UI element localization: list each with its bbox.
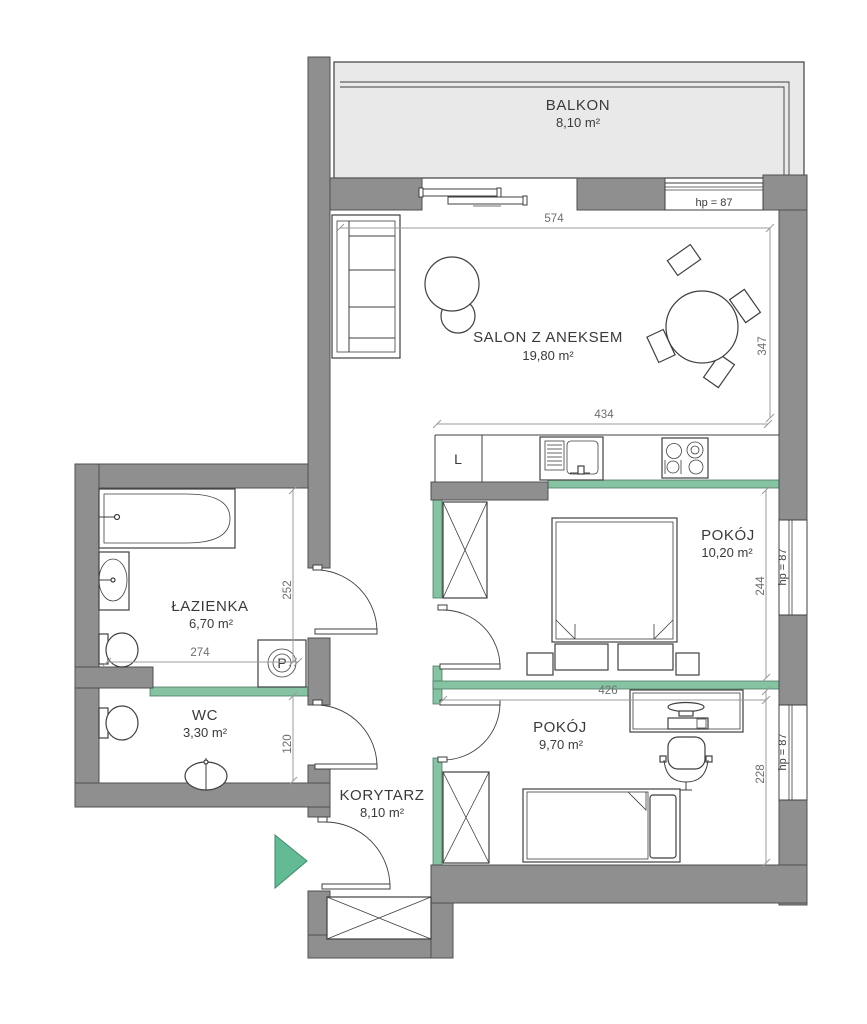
- faucet: [111, 578, 115, 582]
- bathtub: [99, 489, 235, 548]
- armchair: [425, 257, 479, 333]
- kitchen-sink: [540, 437, 603, 480]
- accent-wall-segment: [548, 480, 779, 488]
- wardrobe: [443, 502, 487, 598]
- room-area-korytarz: 8,10 m²: [360, 805, 405, 820]
- dim-label-kitchen-width: 434: [594, 409, 614, 421]
- accent-wall-segment: [433, 487, 442, 598]
- desk-chair: [660, 737, 712, 790]
- window-right-2: hp = 87: [777, 705, 807, 800]
- wall-segment: [308, 638, 330, 705]
- washbasin: [99, 552, 129, 610]
- dim-label-bedroom2-depth: 228: [755, 764, 767, 783]
- window-sill-label: hp = 87: [777, 733, 789, 770]
- pillow: [650, 795, 676, 858]
- room-label-salon: SALON Z ANEKSEM: [473, 329, 623, 346]
- balcony-sliding-door: [419, 188, 527, 206]
- wall-segment: [75, 667, 153, 688]
- dim-label-salon-depth: 347: [757, 336, 769, 355]
- window-sill-label: hp = 87: [695, 197, 732, 209]
- room-area-salon: 19,80 m²: [522, 348, 574, 363]
- wardrobe: [443, 772, 489, 863]
- dim-label-bathroom-depth: 252: [282, 580, 294, 599]
- faucet: [115, 515, 120, 520]
- wc-door: [313, 700, 377, 769]
- bedroom1-furniture: [443, 502, 699, 675]
- faucet: [578, 466, 584, 474]
- room-area-pokoj2: 9,70 m²: [539, 737, 584, 752]
- wall-segment: [308, 57, 330, 568]
- dining-table: [666, 291, 738, 363]
- entry-door: [318, 817, 390, 889]
- pillow: [618, 644, 673, 670]
- wall-segment: [577, 178, 665, 210]
- laptop: [668, 718, 708, 729]
- room-label-lazienka: ŁAZIENKA: [171, 598, 248, 615]
- room-label-wc: WC: [192, 707, 218, 724]
- toilet-bowl: [106, 706, 138, 740]
- floor-plan-page: hp = 87 hp = 87 hp = 87: [0, 0, 867, 1024]
- window-right-1: hp = 87: [777, 520, 807, 615]
- wall-segment: [431, 865, 807, 903]
- wall-segment: [779, 210, 807, 520]
- sofa: [332, 215, 400, 358]
- floor-plan-drawing: hp = 87 hp = 87 hp = 87: [0, 0, 867, 1024]
- toilet-wc: [99, 706, 138, 740]
- wall-segment: [75, 464, 99, 807]
- room-area-wc: 3,30 m²: [183, 725, 228, 740]
- wall-segment: [779, 615, 807, 705]
- dining-set: [647, 245, 760, 388]
- dim-label-bedroom2-width: 426: [598, 685, 617, 697]
- accent-wall-segment: [433, 758, 442, 867]
- bedroom2-furniture: [443, 690, 743, 863]
- double-bed: [527, 518, 699, 675]
- bathroom-door: [313, 565, 377, 634]
- dim-label-wc-depth: 120: [282, 734, 294, 753]
- washing-machine-label: P: [277, 655, 286, 671]
- room-label-korytarz: KORYTARZ: [339, 787, 424, 804]
- room-label-pokoj2: POKÓJ: [533, 719, 587, 736]
- accent-wall-segment: [150, 687, 308, 696]
- wc-basin: [185, 758, 227, 790]
- vestibule-closet: [327, 897, 431, 939]
- wall-segment: [431, 482, 548, 500]
- window-top: hp = 87: [665, 183, 763, 210]
- dim-label-salon-width: 574: [544, 213, 564, 225]
- fridge-label: L: [454, 451, 462, 467]
- dim-label-bathroom-width: 274: [190, 647, 210, 659]
- dim-label-bedroom1-depth: 244: [755, 576, 767, 596]
- dining-chair: [667, 245, 700, 276]
- wall-segment: [330, 178, 422, 210]
- room-area-lazienka: 6,70 m²: [189, 616, 234, 631]
- kitchen: L: [435, 435, 779, 482]
- desk: [630, 690, 743, 732]
- nightstand: [527, 653, 553, 675]
- entrance-arrow: [275, 835, 307, 888]
- single-bed: [523, 789, 680, 862]
- room-area-pokoj1: 10,20 m²: [701, 545, 753, 560]
- wall-segment: [75, 464, 308, 488]
- window-sill-label: hp = 87: [777, 548, 789, 585]
- desk-lamp: [668, 703, 704, 712]
- room-label-balkon: BALKON: [546, 97, 610, 114]
- stove: [662, 438, 708, 478]
- nightstand: [676, 653, 699, 675]
- wall-segment: [763, 175, 807, 210]
- room-label-pokoj1: POKÓJ: [701, 527, 755, 544]
- room-area-balkon: 8,10 m²: [556, 115, 601, 130]
- faucet: [204, 760, 208, 764]
- pillow: [555, 644, 608, 670]
- bedroom1-door: [438, 605, 500, 669]
- washing-machine: P: [258, 640, 306, 687]
- bedroom2-door: [438, 700, 500, 762]
